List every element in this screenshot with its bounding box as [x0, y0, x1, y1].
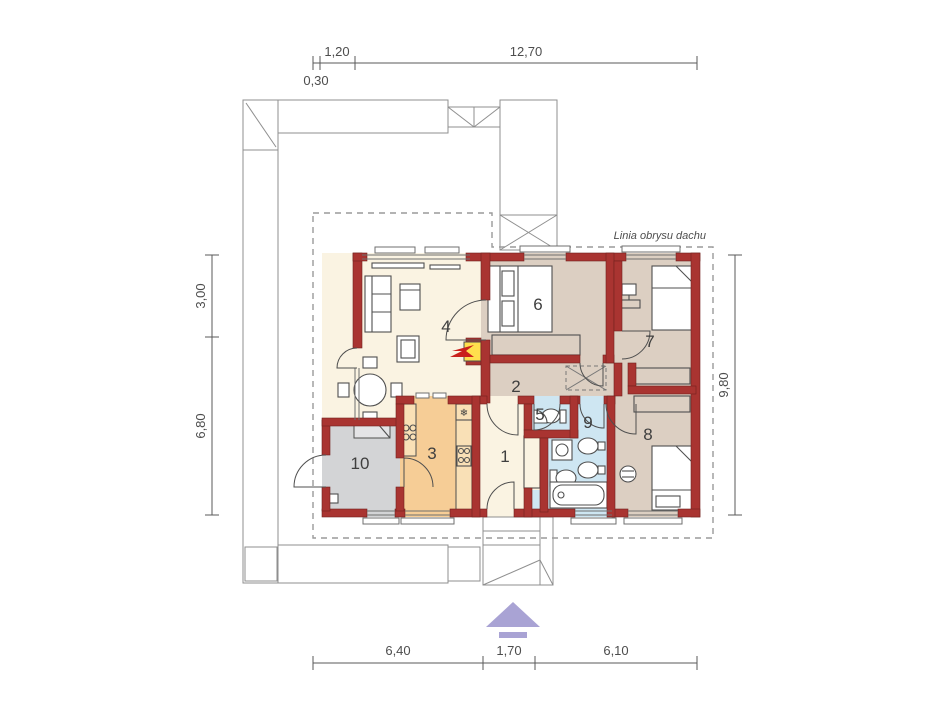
dim-top-030: 0,30: [303, 73, 328, 88]
deck-right-strip: [500, 100, 557, 250]
deck-post-right: [448, 547, 480, 581]
room-label-1: 1: [500, 447, 509, 466]
dim-right-980: 9,80: [716, 372, 731, 397]
room-label-8: 8: [643, 425, 652, 444]
floor-plan-drawing: Linia obrysu dachu: [0, 0, 940, 705]
room-label-3: 3: [427, 444, 436, 463]
dim-top-120: 1,20: [324, 44, 349, 59]
closet-niche-floor: [524, 434, 540, 490]
fridge-icon: ❄: [460, 408, 468, 419]
dim-bottom-170: 1,70: [496, 643, 521, 658]
armchair: [400, 284, 420, 310]
door-utility-exterior: [294, 455, 326, 487]
sofa: [365, 276, 391, 332]
roof-outline-label: Linia obrysu dachu: [614, 230, 706, 242]
entrance-steps: [483, 517, 553, 585]
dim-bottom-610: 6,10: [603, 643, 628, 658]
bathtub: [550, 482, 607, 508]
dim-left-680: 6,80: [193, 413, 208, 438]
bed-room7: [652, 266, 694, 330]
room-label-5: 5: [535, 405, 544, 424]
kitchen-cabinet: [433, 393, 446, 398]
coffee-table: [397, 336, 419, 362]
deck-top-strip: [278, 100, 448, 133]
room-label-7: 7: [645, 332, 654, 351]
dim-bottom-640: 6,40: [385, 643, 410, 658]
deck-post-left: [245, 547, 277, 581]
room-label-4: 4: [441, 317, 450, 336]
deck-left-strip: [243, 150, 278, 583]
kitchen-cabinet: [416, 393, 429, 398]
tv-console: [372, 263, 424, 268]
room-label-2: 2: [511, 377, 520, 396]
shelf: [430, 265, 460, 269]
floor-plan-page: Linia obrysu dachu: [0, 0, 940, 705]
dim-left-300: 3,00: [193, 283, 208, 308]
room-label-6: 6: [533, 295, 542, 314]
dim-top-1270: 12,70: [510, 44, 543, 59]
deck-bottom-strip: [278, 545, 448, 583]
entrance-arrow-icon: [486, 602, 540, 638]
side-table-room8: [620, 466, 636, 482]
room-label-10: 10: [351, 454, 370, 473]
room-label-9: 9: [583, 413, 592, 432]
pergola-beam: [448, 107, 500, 127]
bed-room8: [652, 446, 694, 510]
washing-machine: [552, 440, 572, 460]
